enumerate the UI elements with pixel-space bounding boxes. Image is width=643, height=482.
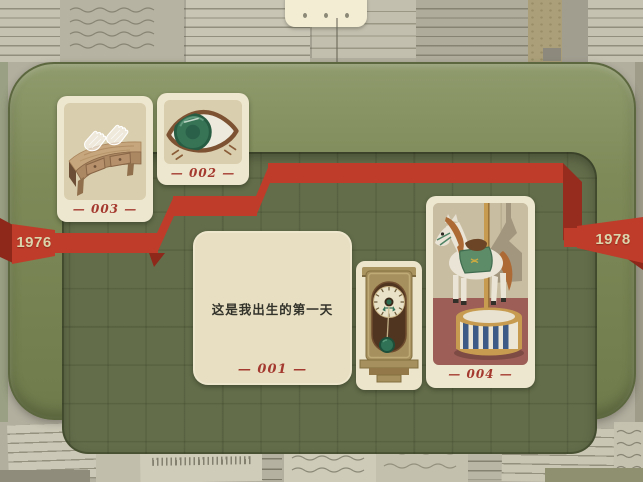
paper-sheet — [635, 62, 643, 422]
paper-sheet — [0, 0, 60, 62]
pendulum-clock-piece[interactable] — [356, 261, 422, 390]
paper-scrap — [543, 48, 561, 61]
handle-dot-icon — [324, 13, 328, 18]
drawer-handle[interactable] — [285, 0, 367, 27]
card-002-picture — [164, 100, 242, 164]
card-number-label: — 003 — — [57, 202, 153, 216]
eye-illustration — [164, 100, 242, 164]
handle-dot-icon — [303, 13, 307, 18]
pendulum-clock-illustration — [356, 261, 422, 390]
card-number-label: — 004 — — [426, 367, 535, 381]
wavy-lines — [60, 0, 184, 60]
card-number-label: — 002 — — [157, 166, 249, 180]
memory-card-001[interactable]: 这是我出生的第一天 — 001 — — [193, 231, 352, 385]
card-number-label: — 001 — — [193, 362, 352, 377]
paper-sheet — [60, 0, 184, 60]
paper-sheet — [0, 62, 8, 422]
table-with-gloves-illustration — [64, 103, 146, 200]
carousel-horse-illustration — [433, 203, 528, 365]
hatch-marks — [152, 456, 252, 466]
memory-card-003[interactable]: — 003 — — [57, 96, 153, 222]
card-004-picture — [433, 203, 528, 365]
paper-sheet — [588, 0, 643, 62]
memory-card-002[interactable]: — 002 — — [157, 93, 249, 185]
paper-sheet — [562, 0, 588, 62]
paper-sheet — [416, 0, 530, 62]
handle-dot-icon — [345, 13, 349, 18]
card-001-caption: 这是我出生的第一天 — [193, 299, 352, 318]
game-screen: — 003 — — [0, 0, 643, 482]
paper-seam — [336, 18, 338, 62]
card-003-picture — [64, 103, 146, 200]
paper-sheet — [0, 470, 90, 482]
memory-card-004[interactable]: — 004 — — [426, 196, 535, 388]
paper-sheet — [545, 468, 643, 482]
